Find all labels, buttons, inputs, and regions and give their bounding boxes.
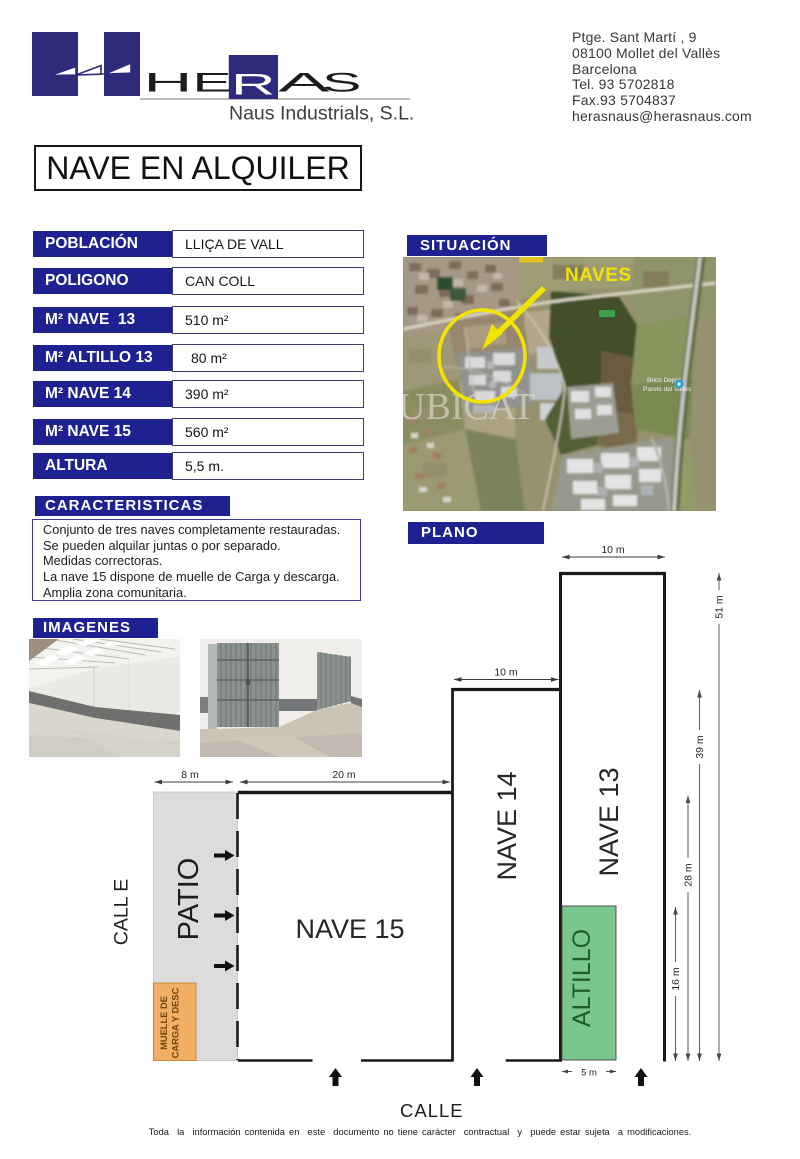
- svg-text:Naus Industrials, S.L.: Naus Industrials, S.L.: [229, 103, 414, 125]
- svg-text:MUELLE DE: MUELLE DE: [159, 996, 169, 1050]
- svg-text:S: S: [322, 67, 362, 97]
- svg-text:CALL E: CALL E: [111, 879, 133, 945]
- svg-text:NAVES: NAVES: [565, 265, 632, 286]
- svg-text:NAVE 13: NAVE 13: [594, 767, 624, 876]
- svg-text:39 m: 39 m: [694, 735, 706, 759]
- svg-text:8 m: 8 m: [181, 769, 199, 781]
- svg-text:51 m: 51 m: [714, 595, 726, 619]
- svg-text:16 m: 16 m: [670, 967, 682, 991]
- svg-text:NAVE 15: NAVE 15: [295, 914, 404, 944]
- svg-text:NAVE 14: NAVE 14: [492, 771, 522, 880]
- svg-text:R: R: [231, 68, 275, 101]
- svg-text:CARGA Y DESC: CARGA Y DESC: [171, 987, 181, 1058]
- svg-text:ALTILLO: ALTILLO: [568, 929, 596, 1027]
- svg-text:5 m: 5 m: [581, 1068, 597, 1079]
- svg-text:Parets del Vallès: Parets del Vallès: [643, 386, 692, 393]
- svg-text:H: H: [144, 67, 193, 97]
- svg-text:10 m: 10 m: [494, 667, 518, 679]
- svg-text:10 m: 10 m: [601, 544, 625, 556]
- svg-text:PATIO: PATIO: [173, 858, 205, 941]
- svg-text:28 m: 28 m: [683, 863, 695, 887]
- svg-text:UBICAT: UBICAT: [403, 386, 535, 428]
- svg-text:E: E: [192, 67, 231, 97]
- svg-text:20 m: 20 m: [332, 769, 356, 781]
